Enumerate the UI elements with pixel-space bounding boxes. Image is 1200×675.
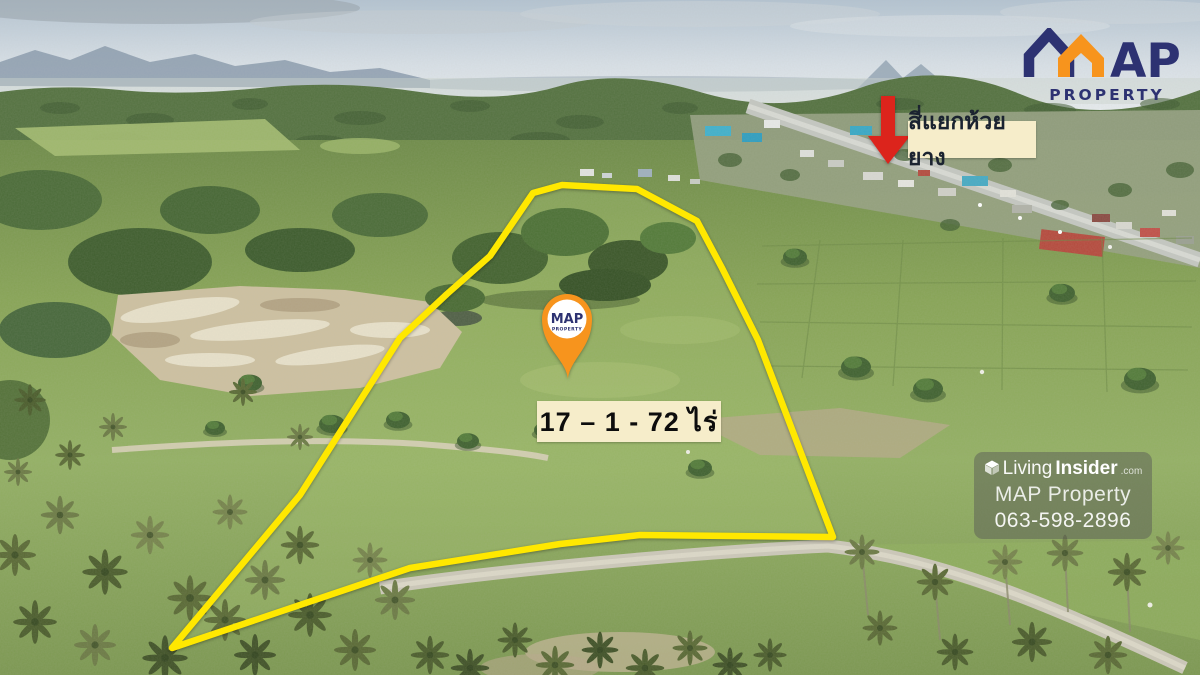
watermark-brand-suffix: .com	[1121, 462, 1143, 481]
watermark-brand-light: Living	[1003, 459, 1053, 478]
pin-logo-wordmark: MAP	[551, 312, 584, 327]
land-boundary-polygon	[172, 185, 833, 648]
logo-tagline: PROPERTY	[1049, 86, 1164, 104]
junction-label: สี่แยกห้วยยาง	[908, 121, 1036, 158]
land-area-label: 17 – 1 - 72 ไร่	[537, 401, 721, 442]
property-listing-image: MAP PROPERTY 17 – 1 - 72 ไร่ สี่แยกห้วยย…	[0, 0, 1200, 675]
land-boundary-overlay	[0, 0, 1200, 675]
map-pin-icon: MAP PROPERTY	[537, 292, 599, 382]
watermark-company: MAP Property	[995, 483, 1131, 507]
pin-logo-tagline: PROPERTY	[552, 327, 583, 333]
logo-orange-house-icon	[1058, 34, 1104, 77]
logo-wordmark-tail: AP	[1110, 34, 1181, 89]
watermark-phone: 063-598-2896	[995, 509, 1132, 533]
watermark-brand-bold: Insider	[1055, 459, 1117, 478]
livinginsider-cube-icon	[984, 460, 1000, 476]
livinginsider-watermark: LivingInsider.com MAP Property 063-598-2…	[974, 452, 1152, 539]
down-arrow-icon	[866, 92, 912, 168]
map-property-logo: AP PROPERTY	[1022, 28, 1192, 106]
